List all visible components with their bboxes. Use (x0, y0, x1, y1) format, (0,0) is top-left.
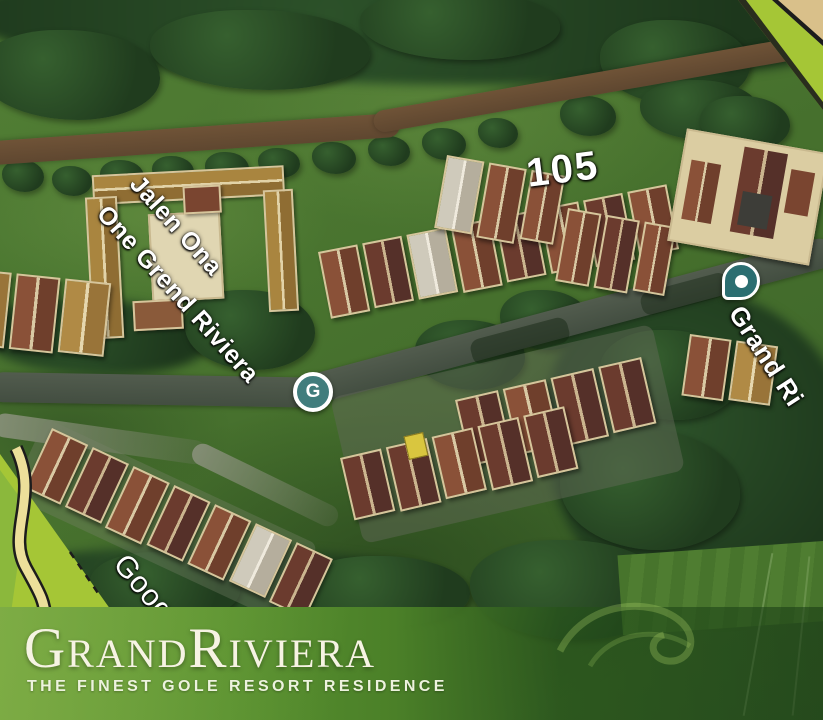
lot-number-label: 105 (524, 143, 602, 197)
house (476, 162, 527, 243)
house (340, 449, 395, 521)
house (406, 227, 458, 299)
roof (681, 160, 721, 224)
house (318, 244, 370, 318)
brand-logo-text: GrandRiviera (24, 621, 823, 677)
roof (784, 169, 815, 216)
building-compound (667, 128, 823, 265)
house (432, 427, 487, 499)
house (681, 334, 731, 401)
illustrated-map-corner-bottom-left (0, 440, 135, 620)
pin-center-dot (735, 275, 748, 288)
house (434, 155, 484, 234)
house-row (0, 268, 111, 359)
bush (2, 160, 44, 192)
g-map-marker[interactable]: G (293, 372, 333, 412)
bush (312, 142, 356, 174)
house (594, 215, 640, 294)
house (9, 273, 61, 353)
tree-blob (150, 10, 370, 90)
roof (182, 185, 221, 215)
brand-banner: GrandRiviera THE FINEST GOLE RESORT RESI… (0, 607, 823, 720)
house (362, 236, 414, 308)
place-pin-marker[interactable] (722, 262, 760, 300)
roof (263, 189, 299, 312)
house (477, 417, 533, 491)
map-canvas[interactable]: Jalen Ona One Grend Riviera 105 Grand Ri… (0, 0, 823, 720)
bush (478, 118, 518, 148)
main-road (0, 372, 320, 408)
house (58, 278, 111, 356)
g-marker-letter: G (306, 381, 321, 403)
bush (368, 136, 410, 166)
bush (560, 96, 616, 136)
illustrated-map-corner-top-right (700, 0, 823, 115)
roof (737, 191, 772, 230)
brand-tagline: THE FINEST GOLE RESORT RESIDENCE (27, 678, 823, 696)
bush (422, 128, 466, 160)
